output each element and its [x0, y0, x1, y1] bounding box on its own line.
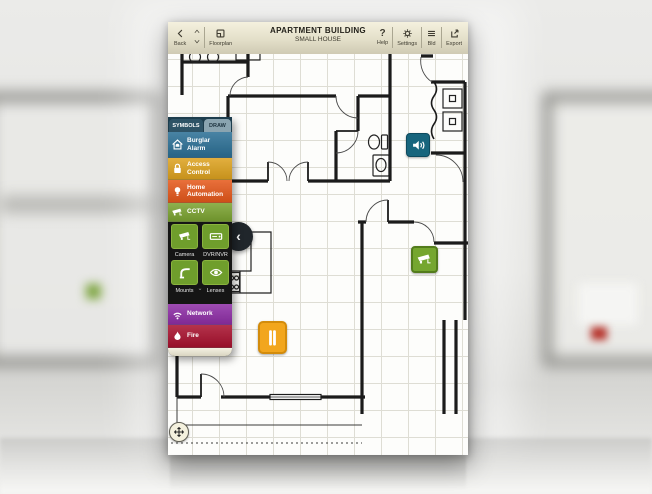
category-label: Access Control [187, 161, 229, 175]
collapse-panel-icon: ‹ [236, 228, 241, 244]
category-access-control[interactable]: Access Control [168, 158, 232, 180]
gear-icon [402, 28, 413, 42]
category-home-automation[interactable]: Home Automation [168, 180, 232, 203]
category-fire[interactable]: Fire [168, 325, 232, 348]
symbols-panel: SYMBOLS DRAW Burglar Alarm Access Co [168, 117, 232, 356]
cctv-camera-icon [416, 251, 433, 268]
help-label: Help [377, 41, 388, 47]
tile-lenses[interactable] [202, 260, 229, 285]
blurred-backdrop-white-patch [578, 283, 638, 325]
settings-button[interactable]: Settings [393, 22, 421, 53]
flame-icon [171, 330, 184, 343]
category-label: Burglar Alarm [187, 137, 229, 151]
hamburger-icon [426, 28, 437, 42]
settings-label: Settings [397, 42, 417, 48]
move-plan-button[interactable] [169, 422, 189, 442]
category-label: Home Automation [187, 184, 229, 198]
category-label: Network [187, 310, 213, 317]
building-list-button[interactable]: Bld [422, 22, 441, 53]
wifi-icon [171, 308, 184, 321]
blurred-backdrop-left-bar [0, 198, 165, 211]
export-label: Export [446, 42, 462, 48]
category-cctv[interactable]: CCTV [168, 203, 232, 222]
floorplan-subtitle: SMALL HOUSE [270, 36, 366, 43]
contact-bars-icon [263, 327, 282, 349]
page-up-button[interactable] [192, 28, 202, 38]
tile-label-camera: Camera [171, 249, 198, 260]
app-toolbar: Back Floorplan APARTMENT BUILDING [168, 22, 468, 55]
panel-tabs: SYMBOLS DRAW [168, 117, 232, 132]
blurred-backdrop-right-frame [542, 92, 652, 367]
building-title: APARTMENT BUILDING [270, 26, 366, 35]
move-arrows-icon [173, 426, 185, 438]
cctv-camera-icon [171, 206, 184, 219]
cctv-camera-icon [176, 229, 194, 244]
padlock-icon [171, 162, 184, 175]
blurred-backdrop-red-smudge [591, 327, 607, 340]
category-label: CCTV [187, 208, 205, 215]
floorplan-icon [215, 28, 226, 42]
eye-icon [207, 265, 225, 280]
cctv-camera-device[interactable] [411, 246, 438, 273]
back-icon [175, 28, 186, 42]
export-icon [449, 28, 460, 42]
back-button[interactable]: Back [170, 22, 190, 53]
tile-mounts[interactable] [171, 260, 198, 285]
door-contact-device[interactable] [258, 321, 287, 354]
tab-draw[interactable]: DRAW [204, 119, 231, 132]
category-network[interactable]: Network [168, 304, 232, 325]
tab-symbols[interactable]: SYMBOLS [169, 119, 203, 132]
page-nav-arrows [190, 22, 204, 53]
toolbar-right-group: ? Help Settings Bld [373, 22, 466, 53]
document-title-block: APARTMENT BUILDING SMALL HOUSE [270, 26, 366, 43]
building-list-label: Bld [428, 42, 436, 48]
chevron-down-icon[interactable]: ⌄ [197, 286, 202, 292]
help-icon: ? [380, 29, 386, 40]
category-label: Fire [187, 332, 199, 339]
help-button[interactable]: ? Help [373, 22, 392, 53]
cctv-expanded-section: Camera DVR/NVR [168, 222, 232, 304]
floorplan-button[interactable]: Floorplan [205, 22, 236, 53]
export-button[interactable]: Export [442, 22, 466, 53]
tile-dvr-nvr[interactable] [202, 224, 229, 249]
back-label: Back [174, 42, 186, 48]
category-burglar-alarm[interactable]: Burglar Alarm [168, 132, 232, 158]
speaker-icon [410, 137, 427, 154]
toolbar-left-group: Back Floorplan [170, 22, 236, 53]
floorplan-label: Floorplan [209, 42, 232, 48]
mount-arm-icon [176, 265, 194, 280]
page-reflection [170, 456, 466, 494]
recorder-icon [207, 229, 225, 244]
bulb-icon [171, 185, 184, 198]
sounder-device[interactable] [406, 133, 430, 157]
tile-label-lenses: Lenses [202, 285, 229, 296]
blurred-backdrop-left-frame [0, 92, 162, 367]
floorplan-page: Back Floorplan APARTMENT BUILDING [168, 22, 468, 455]
page-down-button[interactable] [192, 38, 202, 48]
desktop-background: { "toolbar": { "back": "Back", "floorpla… [0, 0, 652, 494]
tile-label-mounts: Mounts [171, 285, 198, 296]
tile-camera[interactable] [171, 224, 198, 249]
panel-footer [168, 348, 232, 356]
blurred-backdrop-green-smudge [86, 284, 101, 299]
house-bell-icon [171, 138, 184, 151]
tile-label-dvr-nvr: DVR/NVR [202, 249, 229, 260]
floorplan-canvas[interactable]: ‹ SYMBOLS DRAW Burglar Alarm [168, 54, 468, 455]
